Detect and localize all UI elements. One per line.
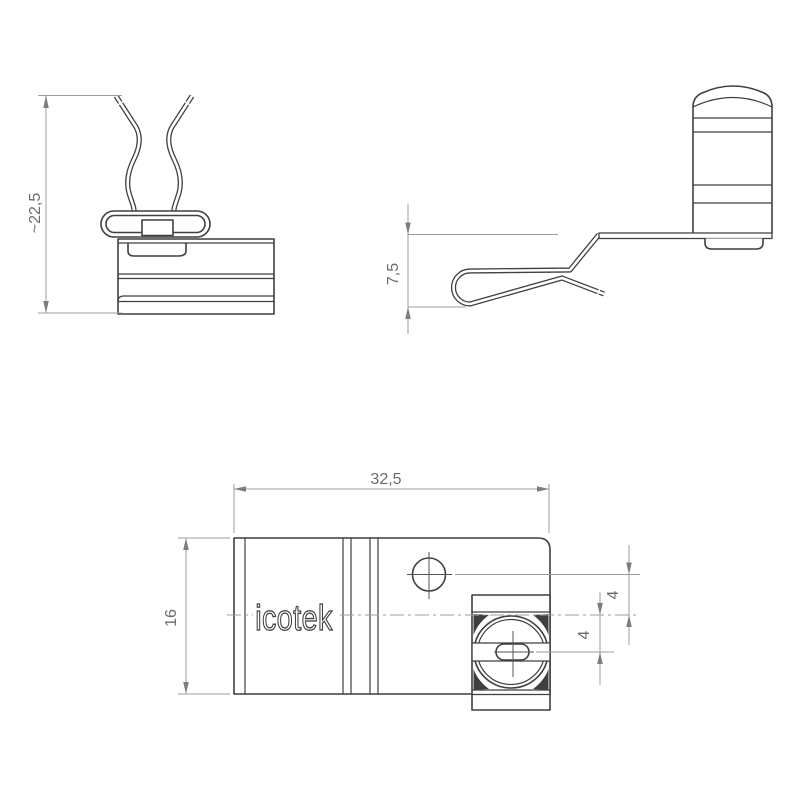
slot-offset-label: 4 xyxy=(576,630,593,639)
clip-latch-tab xyxy=(142,220,173,236)
top-depth-label: 16 xyxy=(163,609,180,627)
hole-offset-label: 4 xyxy=(605,590,622,599)
arrow-down-icon xyxy=(597,603,603,615)
front-height-label: ~22,5 xyxy=(27,193,44,234)
technical-drawing-canvas: ~22,5 7,5 xyxy=(0,0,800,800)
clip-foot-tab xyxy=(705,239,763,250)
arrow-down-icon xyxy=(43,301,49,313)
arrow-up-icon xyxy=(183,538,189,550)
arrow-up-icon xyxy=(43,96,49,109)
top-width-dimension: 32,5 xyxy=(234,471,549,533)
svg-text:icotek: icotek xyxy=(255,597,333,638)
arrow-up-icon xyxy=(597,652,603,664)
arrow-down-icon xyxy=(626,563,632,575)
arrow-right-icon xyxy=(537,486,549,492)
base-block xyxy=(118,239,274,314)
clip-base-loop xyxy=(101,211,210,237)
drawing-svg: ~22,5 7,5 xyxy=(0,0,800,800)
clip-spring-wires xyxy=(116,96,192,215)
mounting-plate-side xyxy=(599,233,772,239)
spring-arm-wire xyxy=(454,235,604,305)
arrow-up-icon xyxy=(405,307,411,319)
top-depth-dimension: 16 xyxy=(163,538,230,694)
front-height-dimension: ~22,5 xyxy=(27,96,122,314)
arrow-down-icon xyxy=(183,682,189,694)
top-width-label: 32,5 xyxy=(370,471,401,488)
side-height-label: 7,5 xyxy=(385,263,402,285)
clip-side-body xyxy=(693,86,772,233)
arrow-up-icon xyxy=(626,615,632,627)
front-view: ~22,5 xyxy=(27,96,274,315)
icotek-logo: icotek xyxy=(255,597,333,638)
arrow-left-icon xyxy=(234,486,246,492)
side-view: 7,5 xyxy=(385,86,772,334)
top-view: icotek 32,5 16 4 xyxy=(163,471,640,710)
arrow-down-icon xyxy=(405,223,411,235)
base-block-pocket xyxy=(128,243,186,256)
